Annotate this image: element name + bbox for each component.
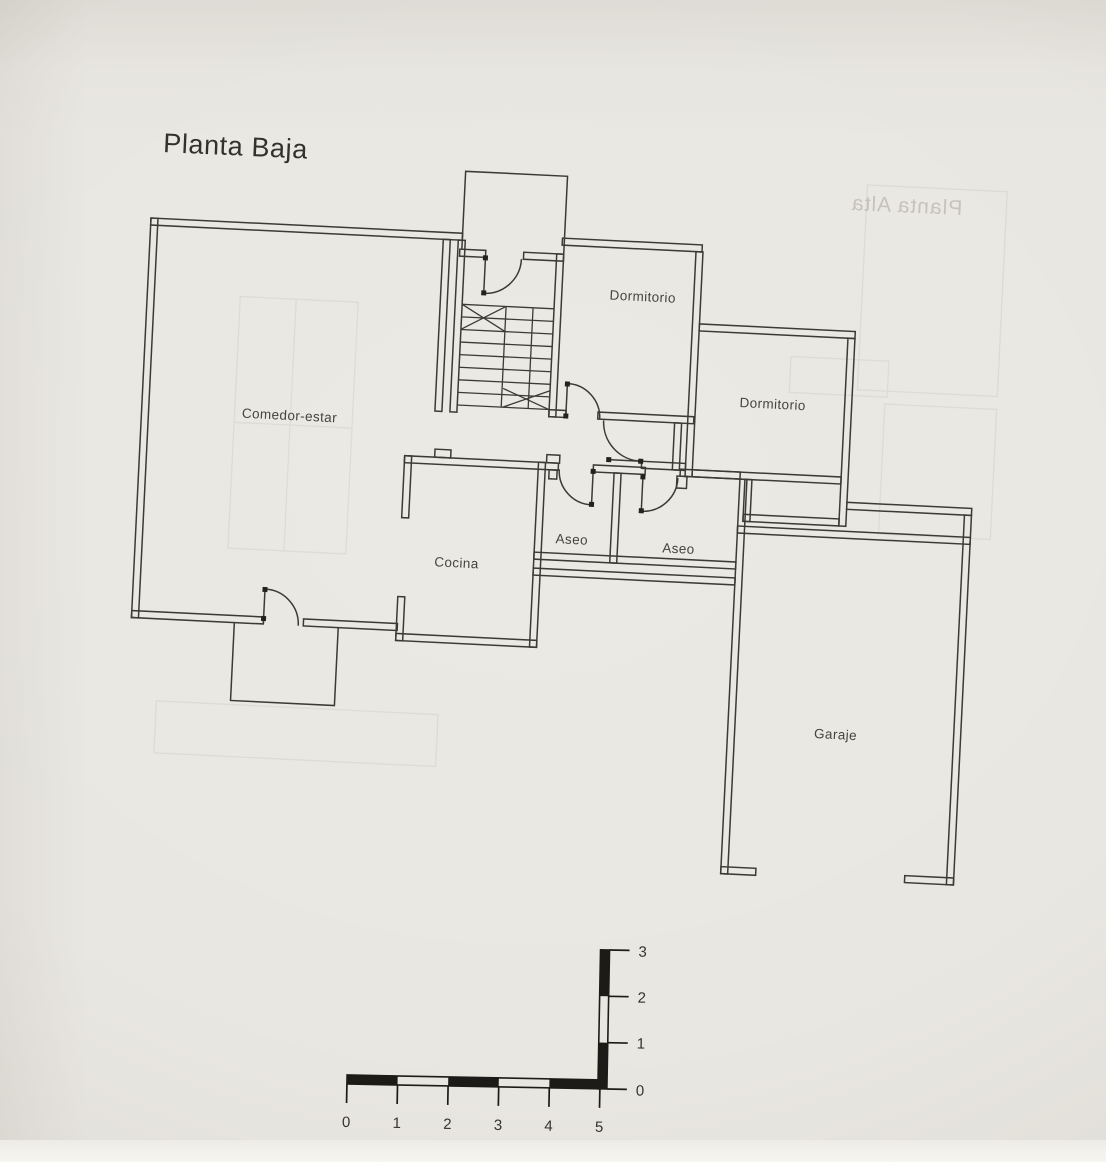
scale-label-v1: 1: [637, 1036, 646, 1053]
stair-tower-outline: [462, 171, 568, 254]
entrance-door: [261, 587, 300, 626]
room-label-comedor-estar: Comedor-estar: [242, 406, 338, 426]
scale-label-v2: 2: [637, 990, 646, 1007]
scale-label-h3: 3: [494, 1117, 503, 1134]
photo-edge-strip: [0, 1140, 1106, 1162]
floor-plan-drawing: Planta Alta: [0, 0, 1106, 1162]
scale-bar: 0 1 2 3 4 5 0 1 2 3: [342, 938, 647, 1137]
scale-label-h1: 1: [392, 1115, 401, 1132]
scale-label-h5: 5: [595, 1119, 604, 1136]
reverse-side-title-mirrored: Planta Alta: [850, 192, 962, 220]
stair-landing-door: [481, 255, 521, 297]
aseo1-door: [557, 467, 595, 507]
scale-label-v3: 3: [638, 944, 647, 961]
aseo2-door: [639, 474, 678, 515]
room-label-dormitorio-2: Dormitorio: [739, 395, 806, 413]
scale-vertical-labels: 0 1 2 3: [636, 944, 647, 1100]
photographed-plan-sheet: Planta Baja Planta Alta: [0, 0, 1106, 1162]
scale-horizontal-labels: 0 1 2 3 4 5: [342, 1114, 604, 1136]
entrance-porch-outline: [231, 623, 339, 706]
scale-label-h4: 4: [544, 1118, 553, 1135]
room-label-aseo-2: Aseo: [662, 540, 695, 557]
room-label-dormitorio-1: Dormitorio: [609, 288, 676, 306]
scale-label-v0: 0: [636, 1083, 645, 1100]
walls: [120, 218, 984, 885]
reverse-side-bleed-through: [154, 151, 1007, 793]
dormitorio1-door: [563, 381, 601, 420]
scale-label-h2: 2: [443, 1116, 452, 1133]
room-label-garaje: Garaje: [814, 726, 858, 743]
scale-label-h0: 0: [342, 1114, 351, 1131]
room-label-cocina: Cocina: [434, 554, 479, 571]
dormitorio2-door: [602, 420, 645, 463]
staircase: [457, 304, 554, 409]
room-label-aseo-1: Aseo: [555, 531, 588, 548]
